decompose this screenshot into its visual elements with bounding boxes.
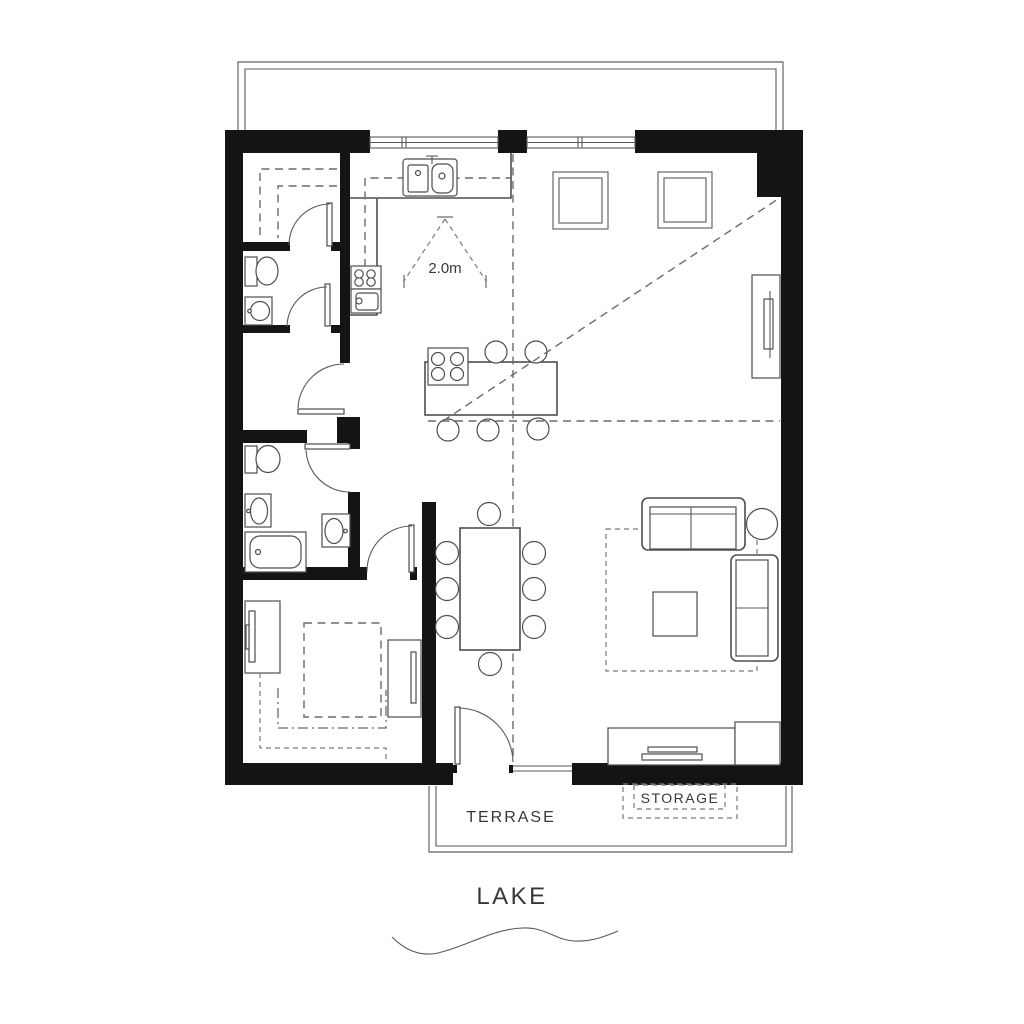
entry-hall [260, 169, 337, 246]
dining-chair [436, 542, 459, 565]
wc-room [245, 257, 330, 327]
door-leaf [327, 203, 332, 246]
balcony [238, 62, 783, 132]
washbasin-icon [245, 494, 271, 527]
cooktop-icon [428, 348, 468, 385]
dining-chair [523, 616, 546, 639]
wall-bottom-left [225, 763, 453, 785]
wall-bedroom-living [422, 502, 436, 763]
closet-outline-dashed [260, 673, 386, 763]
bathroom-door [305, 444, 350, 492]
wall-left [225, 130, 243, 785]
door-swing-arc [289, 204, 330, 245]
bar-stool [437, 419, 459, 441]
dining-chair [523, 542, 546, 565]
sofa-horizontal [642, 498, 745, 550]
floor-plan-drawing: 2.0m [0, 0, 1024, 1024]
guide-line-diagonal [443, 199, 778, 421]
floor-plan-page: 2.0m [0, 0, 1024, 1024]
door-leaf [298, 409, 344, 414]
storage-area: STORAGE [623, 784, 737, 818]
washbasin-icon [245, 297, 272, 325]
dresser [388, 640, 421, 717]
kitchen-island [425, 341, 557, 441]
wall-kitchen-hall [340, 153, 350, 363]
dining-chair [478, 503, 501, 526]
door-swing-arc [298, 364, 344, 408]
wall-wc-hall [243, 325, 290, 333]
bed-outline-dashed [304, 623, 381, 717]
exterior-walls [225, 130, 803, 785]
door-swing-arc [459, 708, 513, 762]
terrace-label: TERRASE [466, 809, 556, 826]
wall-bathroom-jog [337, 417, 360, 443]
door-jamb [453, 765, 457, 773]
wall-entry-wc [243, 242, 290, 251]
tv-icon [764, 299, 773, 349]
living-dining [428, 154, 780, 765]
door-swing-arc [306, 450, 350, 492]
cabinet-step [735, 722, 780, 765]
wall-bathroom-top [243, 430, 307, 443]
dining-chair [523, 578, 546, 601]
door-leaf [305, 444, 350, 449]
dining-chair [479, 653, 502, 676]
dimension-label: 2.0m [428, 260, 461, 277]
wc-door [287, 284, 330, 327]
bathroom [245, 364, 350, 572]
window-terrace-sliding [513, 763, 572, 785]
dining-chair [436, 578, 459, 601]
washbasin-icon [322, 514, 350, 547]
door-leaf [409, 525, 414, 572]
toilet-icon [245, 446, 280, 474]
window-kitchen [370, 137, 498, 148]
door-swing-arc [367, 526, 412, 572]
wall-top-pier [498, 130, 527, 153]
coffee-table [653, 592, 697, 636]
bathtub-icon [245, 532, 306, 572]
dining-chair [436, 616, 459, 639]
tv-icon [648, 747, 697, 752]
wall-bottom-right [572, 763, 781, 785]
wardrobe [245, 601, 280, 673]
water-wave-icon [392, 928, 618, 954]
tv-wall-unit [752, 275, 780, 378]
bedroom-door [367, 525, 414, 572]
door-leaf [325, 284, 330, 326]
toilet-icon [245, 257, 278, 286]
skylight [553, 172, 608, 229]
side-table [747, 509, 778, 540]
stove-icon [351, 266, 381, 313]
bar-stool [477, 419, 499, 441]
dining-table [436, 503, 546, 676]
door-jamb [331, 325, 340, 333]
bar-stool [485, 341, 507, 363]
door-swing-arc [287, 287, 327, 327]
wall-right [781, 153, 803, 785]
skylight [658, 172, 712, 228]
dimension-marker: 2.0m [404, 217, 486, 288]
closet-outline-dashed [278, 688, 386, 728]
entry-door [289, 203, 332, 246]
tv-console [608, 722, 780, 765]
closet-outline-dashed [260, 169, 337, 238]
terrace-door [455, 707, 513, 764]
door-leaf [455, 707, 460, 764]
storage-label: STORAGE [641, 790, 720, 806]
hall-door [298, 364, 344, 414]
sofa-vertical [731, 555, 778, 661]
kitchen: 2.0m [350, 153, 557, 441]
wall-top-left [225, 130, 370, 153]
door-jamb [509, 765, 513, 773]
lake-label: LAKE [476, 883, 547, 910]
window-living [527, 137, 635, 148]
kitchen-sink-icon [403, 156, 457, 196]
lake-annotation: LAKE [392, 883, 618, 954]
